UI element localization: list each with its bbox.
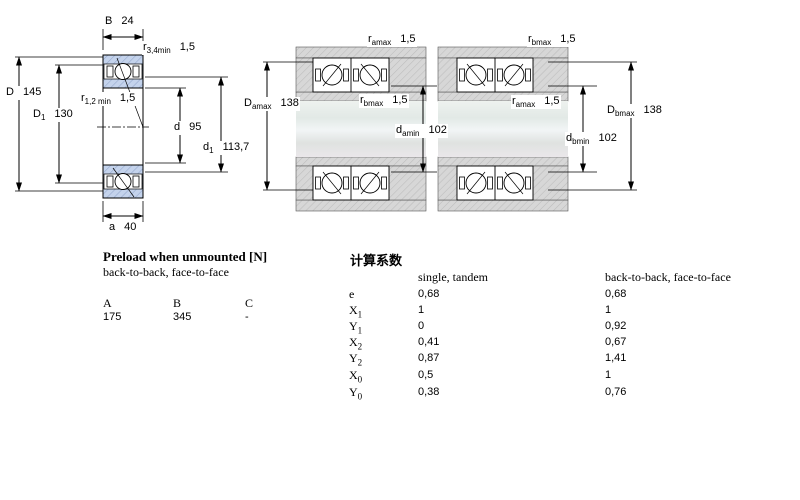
housing-bottom (296, 200, 426, 211)
bearing-pair-top (313, 58, 389, 92)
factors-col-back-to-back: back-to-back, face-to-face (605, 270, 731, 285)
factor-value: 0,38 (418, 386, 439, 398)
dim-label-r12min: r1,2 min1,5 (80, 92, 136, 106)
preload-title: Preload when unmounted [N] (103, 249, 267, 265)
factor-value: 0,67 (605, 336, 626, 348)
housing-bottom (438, 200, 568, 211)
factor-label-X2: X2 (349, 335, 362, 351)
dim-label-rbmax-right: rbmax1,5 (527, 33, 577, 47)
factor-label-Y2: Y2 (349, 351, 362, 367)
factor-value: 0,5 (418, 369, 433, 381)
dim-label-Dbmax: Dbmax138 (606, 104, 663, 118)
factor-value: 0,87 (418, 352, 439, 364)
factor-label-Y0: Y0 (349, 385, 362, 401)
dim-label-a: a40 (108, 221, 137, 235)
factor-label-X1: X1 (349, 303, 362, 319)
factor-value: 0 (418, 320, 424, 332)
preload-value-B: 345 (173, 311, 191, 323)
outer-ring-section-bottom (103, 165, 143, 198)
factor-value: 0,68 (418, 288, 439, 300)
preload-col-C: C (245, 296, 253, 311)
dim-a (103, 201, 143, 222)
dim-label-D1: D1130 (32, 108, 74, 122)
dim-label-damin: damin102 (395, 124, 448, 138)
factors-title: 计算系数 (350, 250, 402, 269)
dim-label-B: B24 (104, 15, 135, 29)
housing-top (438, 47, 568, 58)
dim-label-d1: d1113,7 (202, 141, 250, 155)
bearing-pair-bottom (313, 166, 389, 200)
dim-label-dbmin: dbmin102 (565, 132, 618, 146)
factor-value: 0,76 (605, 386, 626, 398)
dim-label-d: d95 (173, 121, 202, 135)
factor-value: 0,68 (605, 288, 626, 300)
preload-value-C: - (245, 311, 249, 323)
bearing-pair-bottom (457, 166, 533, 200)
dim-label-Damax: Damax138 (243, 97, 300, 111)
outer-ring-section-top (103, 55, 143, 127)
preload-col-B: B (173, 296, 181, 311)
factor-label-e: e (349, 287, 354, 303)
dim-label-ramax-right: ramax1,5 (511, 95, 561, 109)
dim-label-rbmax-mid: rbmax1,5 (359, 94, 409, 108)
shaft (438, 101, 568, 157)
dim-B (103, 29, 143, 50)
factor-value: 1 (605, 369, 611, 381)
factor-value: 1 (418, 304, 424, 316)
bearing-pair-top (457, 58, 533, 92)
dim-label-ramax-mid: ramax1,5 (367, 33, 417, 47)
preload-value-A: 175 (103, 311, 121, 323)
preload-col-A: A (103, 296, 112, 311)
factor-value: 1 (605, 304, 611, 316)
bearing-datasheet-page: B24 r3,4min1,5 D145 D1130 r1,2 min1,5 d9… (0, 0, 800, 500)
dim-label-r34min: r3,4min1,5 (142, 41, 196, 55)
factor-value: 0,41 (418, 336, 439, 348)
ball-top (115, 64, 131, 80)
dim-D1 (55, 65, 103, 183)
right-bearing-pair-figure (438, 47, 637, 211)
factor-value: 0,92 (605, 320, 626, 332)
factor-label-Y1: Y1 (349, 319, 362, 335)
factor-label-X0: X0 (349, 368, 362, 384)
factors-col-single-tandem: single, tandem (418, 270, 488, 285)
preload-subtitle: back-to-back, face-to-face (103, 265, 229, 280)
dim-label-D: D145 (5, 86, 42, 100)
factor-value: 1,41 (605, 352, 626, 364)
housing-top (296, 47, 426, 58)
